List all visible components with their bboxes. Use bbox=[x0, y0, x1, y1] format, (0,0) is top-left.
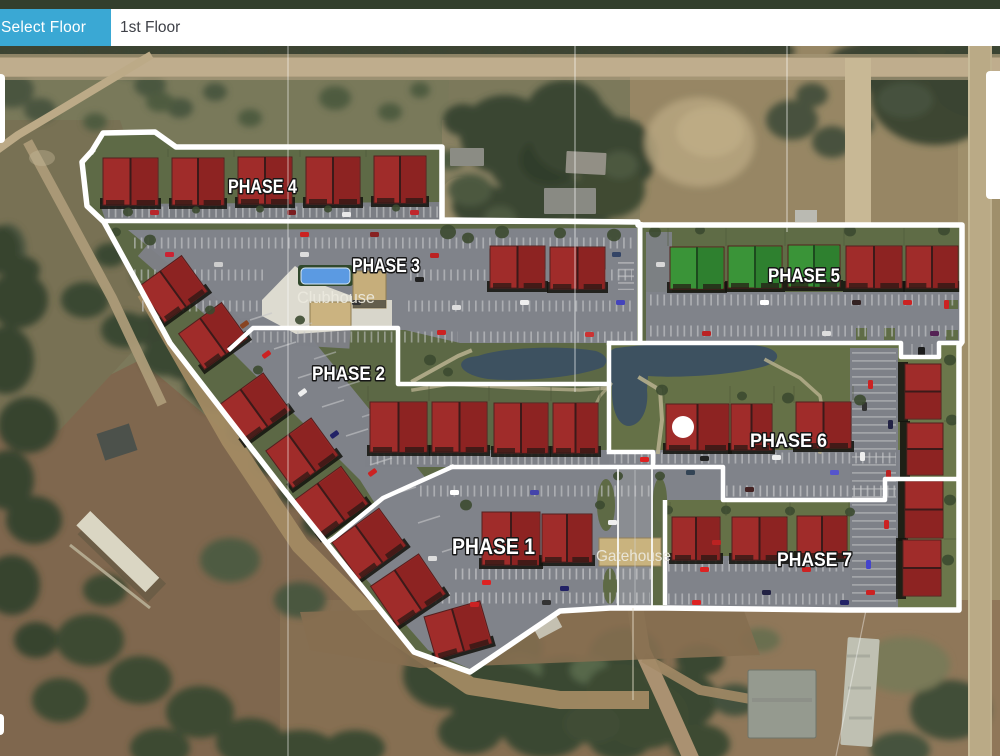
svg-text:PHASE 6: PHASE 6 bbox=[750, 431, 827, 452]
svg-text:PHASE 1: PHASE 1 bbox=[452, 534, 535, 559]
svg-text:Clubhouse: Clubhouse bbox=[297, 288, 375, 307]
svg-text:PHASE 3: PHASE 3 bbox=[352, 256, 420, 277]
svg-text:PHASE 7: PHASE 7 bbox=[777, 550, 852, 571]
svg-text:PHASE 5: PHASE 5 bbox=[768, 266, 840, 287]
svg-text:PHASE 2: PHASE 2 bbox=[312, 364, 385, 385]
svg-text:Gatehouse: Gatehouse bbox=[596, 548, 671, 565]
svg-text:PHASE 4: PHASE 4 bbox=[228, 177, 297, 198]
